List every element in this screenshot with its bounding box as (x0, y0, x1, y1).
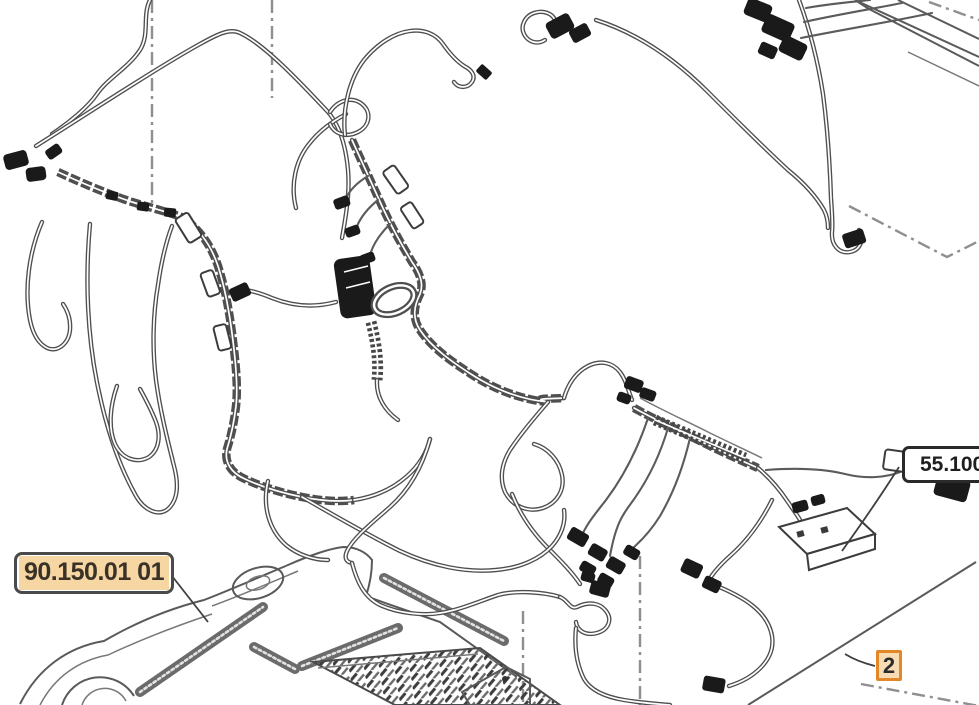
callout-2[interactable]: 2 (876, 650, 902, 681)
callout-number: 2 (883, 655, 895, 677)
part-reference-box-90-150-01-01[interactable]: 90.150.01 01 (14, 552, 174, 594)
leader-lines (172, 467, 899, 666)
panel-edges (748, 0, 979, 705)
part-reference-box-55-100[interactable]: 55.100 (902, 446, 979, 483)
part-reference-text: 55.100 (915, 450, 979, 480)
relay-connector-block (779, 508, 875, 570)
wiring-harness (27, 0, 932, 705)
relay-module (333, 255, 377, 319)
parts-diagram-page: 90.150.01 01 55.100 2 (0, 0, 979, 705)
part-reference-text: 90.150.01 01 (19, 556, 169, 590)
wiring-harness-line-art (0, 0, 979, 705)
